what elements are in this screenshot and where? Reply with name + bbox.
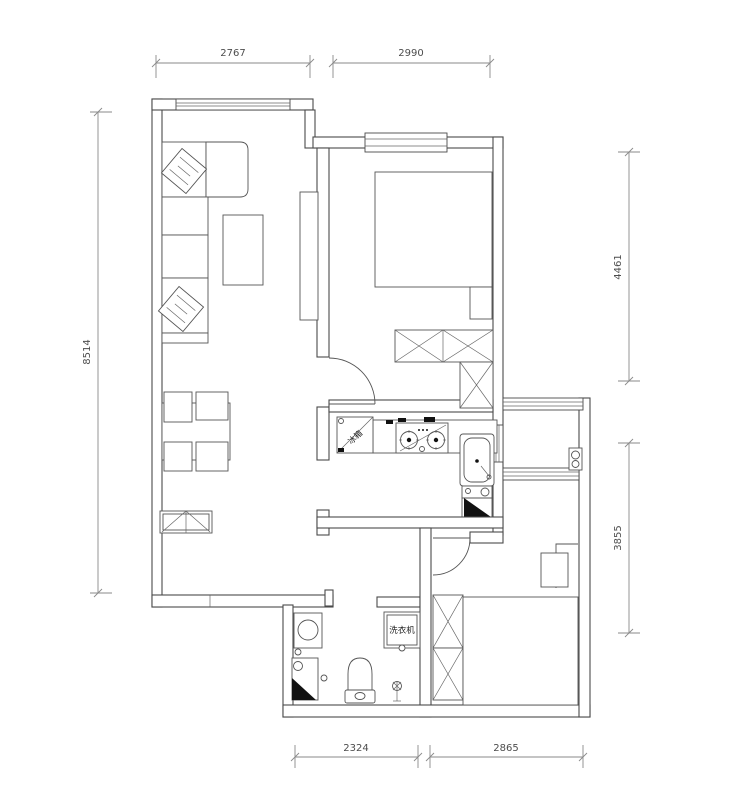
nightstand (470, 287, 492, 319)
shower-corner (292, 658, 327, 700)
desk (541, 553, 568, 587)
coffee-table (223, 215, 263, 285)
floor-plan-canvas: 冰箱 (0, 0, 740, 800)
dim-label: 2865 (493, 743, 518, 754)
dining-chair (196, 392, 228, 420)
water-heater (569, 448, 582, 470)
dim-right-upper: 4461 (613, 148, 640, 385)
wall-bathroom-bedroom2-divider (420, 528, 431, 717)
wall-bedroom-kitchen-right (493, 137, 503, 535)
dim-label: 2767 (220, 48, 245, 59)
door-bedroom (329, 358, 375, 404)
wardrobe (395, 330, 493, 408)
toilet (345, 658, 375, 703)
bed2 (463, 597, 578, 705)
kitchen-sink (460, 434, 494, 486)
dim-right-lower: 3855 (613, 439, 640, 637)
wall-bathroom-left (283, 605, 293, 717)
washing-machine: 洗衣机 (384, 612, 420, 651)
balcony-fixtures (569, 448, 582, 470)
dim-label: 8514 (82, 339, 93, 364)
wardrobe2 (433, 595, 463, 700)
wall-kitchen-bottom (317, 517, 503, 528)
living-room-furniture (158, 142, 318, 533)
corner-cabinet (462, 486, 492, 517)
wall-living-bottom (152, 595, 333, 607)
dining-chair (164, 442, 192, 471)
wall-kitchen-left-upper (317, 407, 329, 460)
washbasin (294, 613, 322, 655)
window-balcony-bottom (503, 468, 579, 480)
shoe-cabinet (160, 511, 212, 533)
doors (329, 358, 470, 575)
bathroom-fixtures: 洗衣机 (292, 612, 420, 703)
tv-cabinet (300, 192, 318, 320)
door-jamb-bathroom (325, 590, 333, 606)
dim-label: 3855 (613, 525, 624, 550)
dim-label: 2990 (398, 48, 423, 59)
dining-chair (164, 392, 192, 422)
fridge: 冰箱 (337, 417, 373, 453)
wall-bottom (283, 705, 590, 717)
dim-bottom-left: 2324 (291, 743, 422, 768)
wall-divider-living-bedroom (317, 148, 329, 357)
washing-machine-label: 洗衣机 (389, 625, 415, 636)
kitchen-fixtures: 冰箱 (337, 417, 497, 517)
door-bedroom2 (433, 538, 470, 575)
dim-label: 2324 (343, 743, 368, 754)
wall-bedroom2-top (470, 532, 503, 543)
dining-set (162, 392, 230, 471)
dim-top-right: 2990 (329, 48, 494, 78)
dining-chair (196, 442, 228, 471)
dim-label: 4461 (613, 254, 624, 279)
window-balcony-top (503, 398, 583, 410)
dim-left: 8514 (82, 108, 112, 597)
bedroom-furniture (375, 172, 493, 408)
wall-bathroom-top-right (377, 597, 420, 607)
window-bedroom-top (365, 133, 447, 152)
sofa-corner-table (206, 142, 248, 197)
wall-right (579, 398, 590, 717)
dim-bottom-right: 2865 (426, 743, 587, 768)
floor-drain-icon (393, 681, 402, 701)
bed (375, 172, 492, 287)
window-living-top (176, 99, 290, 110)
dim-top-left: 2767 (152, 48, 314, 78)
